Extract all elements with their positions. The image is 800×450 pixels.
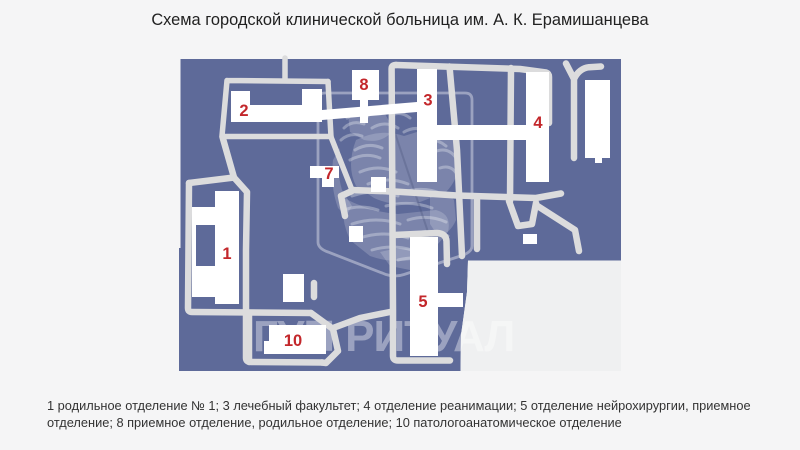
svg-text:4: 4: [533, 114, 543, 132]
svg-text:5: 5: [418, 293, 427, 311]
svg-text:8: 8: [359, 76, 368, 94]
svg-text:3: 3: [423, 92, 432, 110]
svg-text:10: 10: [284, 332, 302, 350]
svg-text:1: 1: [222, 245, 231, 263]
svg-text:2: 2: [239, 102, 248, 120]
svg-text:7: 7: [324, 165, 333, 183]
